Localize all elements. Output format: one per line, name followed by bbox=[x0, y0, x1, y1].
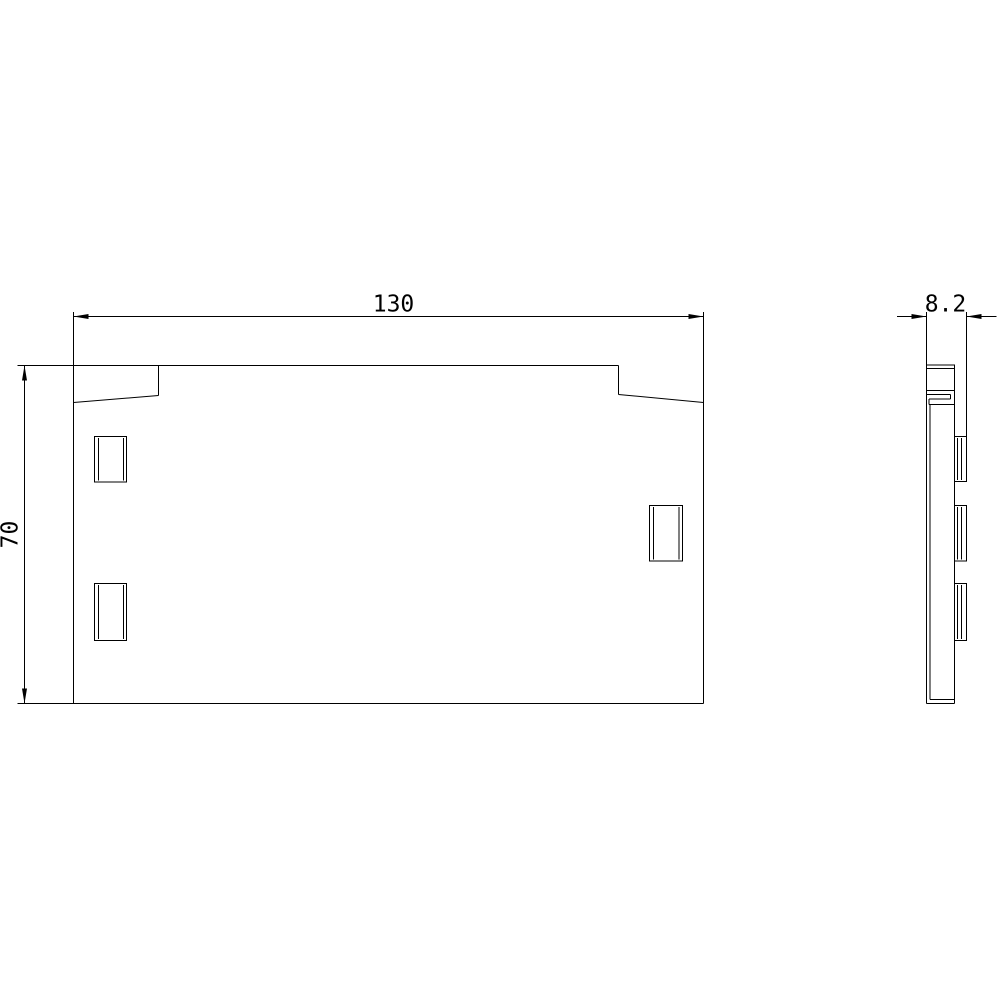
side-tab-top bbox=[955, 437, 967, 482]
tab-outline bbox=[955, 506, 967, 562]
dim-width-arrow-left bbox=[74, 314, 89, 319]
front-top-left-bevel bbox=[74, 396, 159, 403]
drawing-page: 130 70 8.2 bbox=[0, 0, 1000, 1000]
tab-outline bbox=[955, 437, 967, 482]
front-slot-right bbox=[650, 506, 683, 562]
front-top-right-bevel bbox=[619, 395, 704, 403]
front-slot-top-left bbox=[95, 437, 127, 483]
drawing-linework bbox=[18, 312, 997, 704]
dim-depth-arrow-right bbox=[967, 314, 982, 319]
slot-outline bbox=[650, 506, 683, 562]
drawing-fills: 130 70 8.2 bbox=[0, 292, 982, 704]
side-view bbox=[927, 312, 967, 704]
dim-width-arrow-right bbox=[689, 314, 704, 319]
technical-drawing-canvas: 130 70 8.2 bbox=[0, 0, 1000, 1000]
dim-height-label: 70 bbox=[0, 521, 24, 549]
dim-height-arrow-bottom bbox=[22, 689, 27, 704]
dim-height-arrow-top bbox=[22, 366, 27, 381]
side-clip-detail bbox=[927, 391, 956, 405]
front-view bbox=[18, 312, 704, 704]
slot-outline bbox=[95, 437, 127, 483]
tab-outline bbox=[955, 584, 967, 641]
side-tab-middle bbox=[955, 506, 967, 562]
dim-depth-label: 8.2 bbox=[925, 292, 967, 318]
side-tab-bottom bbox=[955, 584, 967, 641]
dim-width-label: 130 bbox=[373, 292, 415, 318]
front-slot-bottom-left bbox=[95, 584, 127, 641]
slot-outline bbox=[95, 584, 127, 641]
